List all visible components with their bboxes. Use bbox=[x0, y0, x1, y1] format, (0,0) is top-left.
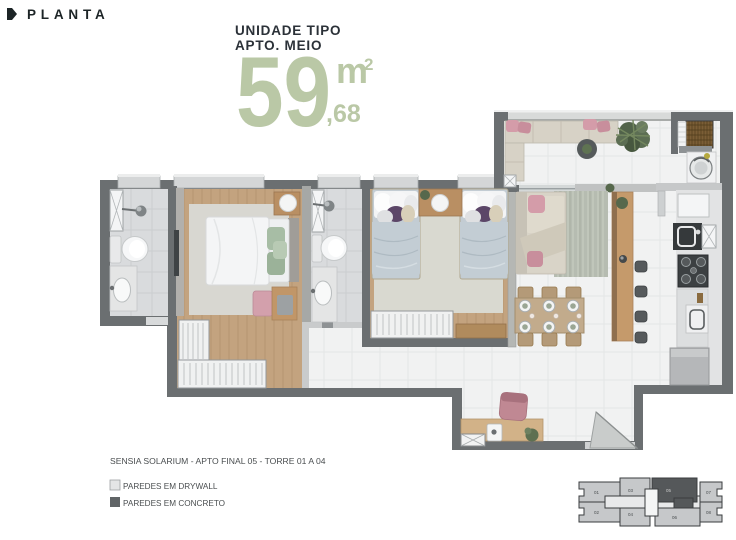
svg-text:PAREDES EM DRYWALL: PAREDES EM DRYWALL bbox=[123, 482, 218, 491]
svg-text:05: 05 bbox=[666, 488, 672, 493]
svg-text:PAREDES EM CONCRETO: PAREDES EM CONCRETO bbox=[123, 499, 225, 508]
svg-text:03: 03 bbox=[628, 488, 634, 493]
svg-text:04: 04 bbox=[628, 512, 634, 517]
svg-text:,68: ,68 bbox=[326, 100, 361, 128]
svg-text:2: 2 bbox=[364, 55, 373, 74]
svg-text:01: 01 bbox=[594, 490, 600, 495]
svg-text:SENSIA SOLARIUM - APTO FINAL 0: SENSIA SOLARIUM - APTO FINAL 05 - TORRE … bbox=[110, 456, 326, 466]
svg-text:PLANTA: PLANTA bbox=[27, 7, 110, 22]
svg-text:02: 02 bbox=[594, 510, 600, 515]
svg-text:08: 08 bbox=[706, 510, 712, 515]
svg-text:59: 59 bbox=[236, 36, 331, 147]
svg-text:07: 07 bbox=[706, 490, 712, 495]
svg-text:06: 06 bbox=[672, 515, 678, 520]
